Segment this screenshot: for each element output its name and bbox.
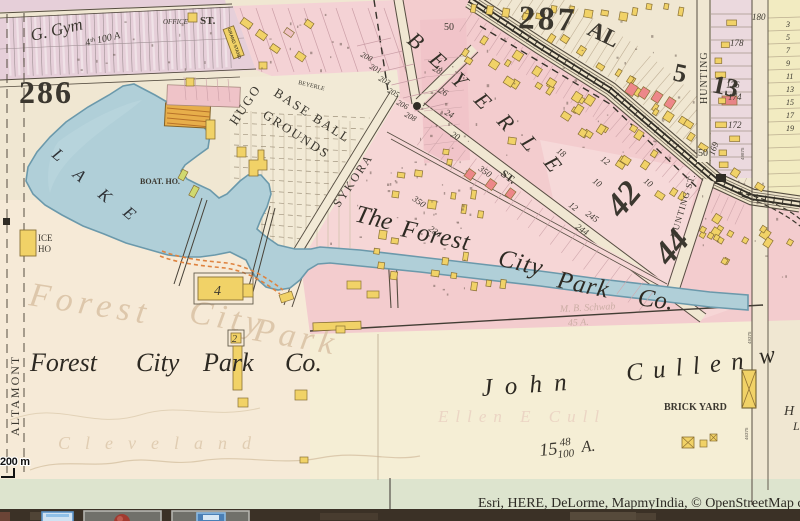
svg-text:Esri, HERE, DeLorme, MapmyIndi: Esri, HERE, DeLorme, MapmyIndia, © OpenS… — [478, 496, 800, 511]
svg-text:200 m: 200 m — [0, 456, 30, 468]
